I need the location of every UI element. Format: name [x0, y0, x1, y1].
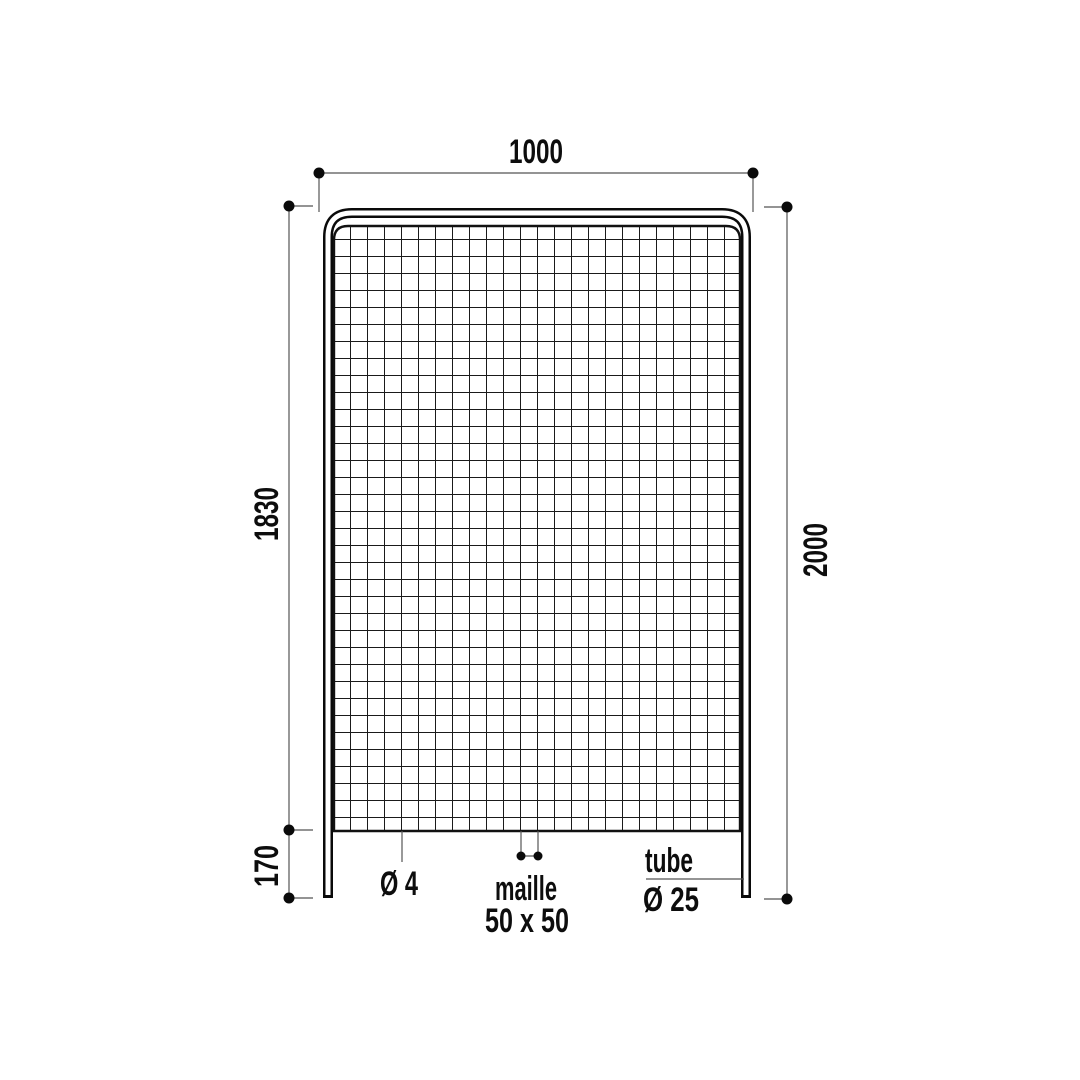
dim-dot [284, 201, 295, 212]
dim-width-label: 1000 [509, 133, 563, 171]
drawing-canvas: 1000 1830 170 2000 [0, 0, 1080, 1080]
fence-panel-technical-drawing: 1000 1830 170 2000 [0, 0, 1080, 1080]
dim-mesh-height-label: 1830 [248, 487, 286, 541]
dim-leg-height-label: 170 [248, 845, 286, 887]
mesh-size-callout [517, 831, 543, 861]
dim-dot [314, 168, 325, 179]
dim-dot-small [534, 852, 543, 861]
dimension-left [284, 201, 314, 904]
dim-dot-small [517, 852, 526, 861]
dim-dot [284, 893, 295, 904]
dimension-right [764, 202, 793, 905]
mesh-size-label: 50 x 50 [485, 902, 569, 940]
tube-label: tube [645, 842, 693, 880]
dim-total-height-label: 2000 [797, 523, 835, 577]
wire-diameter-label: Ø 4 [380, 865, 418, 903]
dim-dot [284, 825, 295, 836]
dim-dot [782, 894, 793, 905]
dim-dot [782, 202, 793, 213]
dimension-width [314, 168, 759, 213]
dim-dot [748, 168, 759, 179]
tube-diameter-label: Ø 25 [643, 881, 699, 919]
mesh-panel [334, 226, 740, 831]
